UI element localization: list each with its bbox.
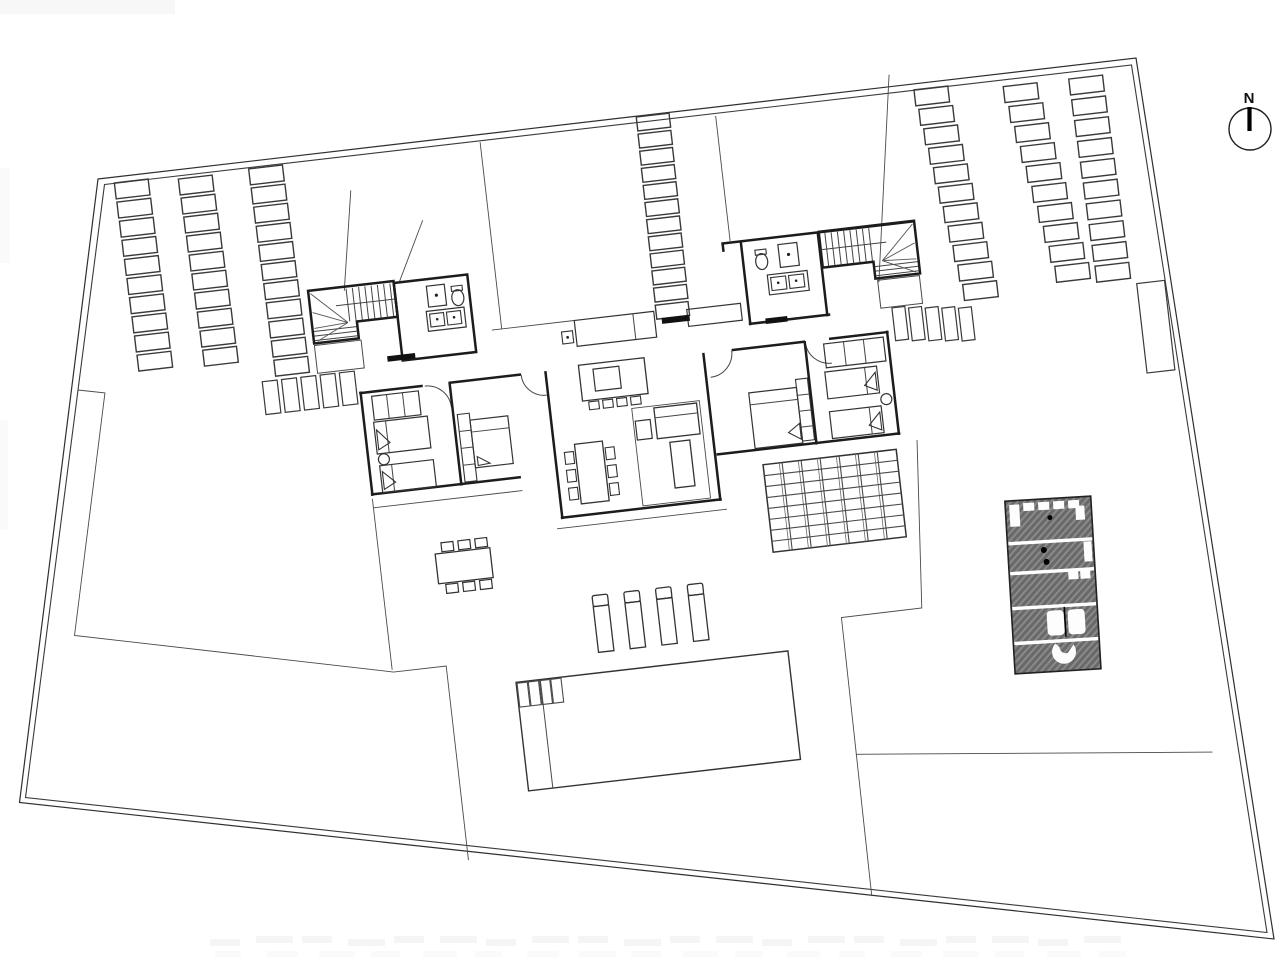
svg-text:N: N bbox=[1244, 90, 1255, 107]
